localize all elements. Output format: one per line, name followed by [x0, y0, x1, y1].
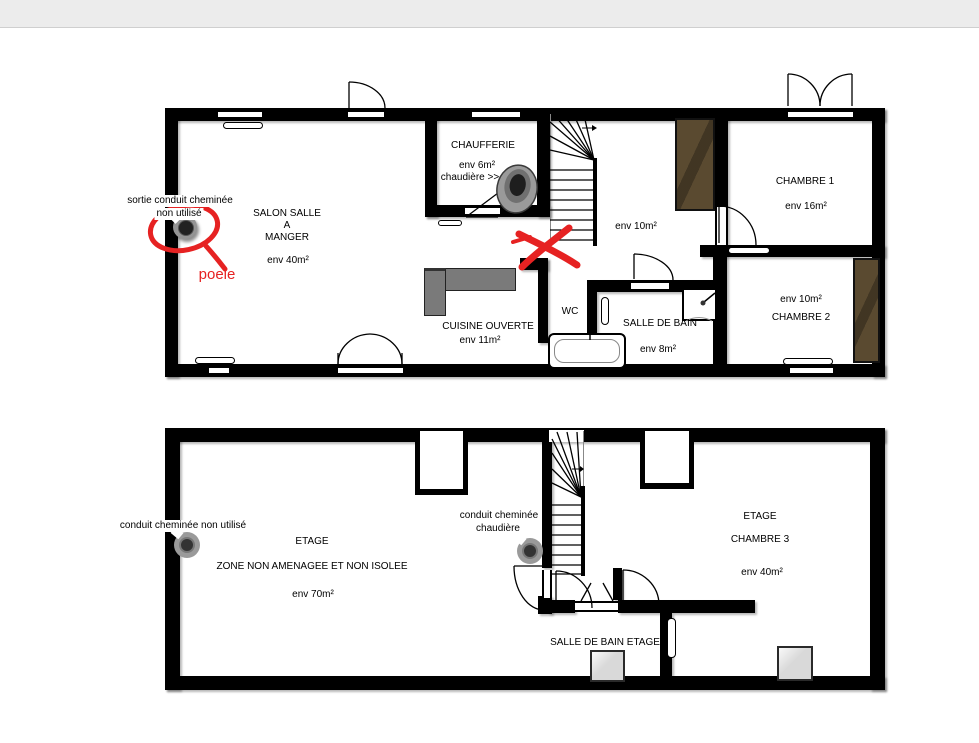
window-slider — [195, 357, 235, 364]
roof-window — [777, 646, 813, 681]
wall-segment — [165, 108, 178, 377]
salon-label-line2: A — [284, 220, 291, 232]
sortie-conduit-annotation-line2: non utilisé — [154, 208, 203, 220]
double-door-leaves — [573, 580, 621, 602]
chambre2-label: CHAMBRE 2 — [772, 312, 830, 324]
floor1-plan: CHAUFFERIE env 6m² chaudière >> SALON SA… — [165, 108, 885, 378]
french-door-threshold — [788, 110, 853, 119]
tap-icon — [584, 331, 596, 343]
door-swing — [501, 562, 547, 614]
salle-de-bain-area-label: env 8m² — [640, 344, 676, 356]
sortie-conduit-annotation-line1: sortie conduit cheminée — [125, 195, 235, 207]
chimney-core — [179, 537, 195, 553]
floor2-plan: ETAGE ZONE NON AMENAGEE ET NON ISOLEE en… — [165, 428, 885, 690]
door-swing — [346, 81, 386, 109]
dormer-window-niche — [640, 431, 694, 489]
chimney-icon — [174, 532, 200, 558]
door-swing — [713, 201, 757, 251]
window — [218, 110, 262, 119]
chaufferie-label: CHAUFFERIE — [451, 140, 515, 152]
conduit-non-utilise-annotation: conduit cheminée non utilisé — [118, 520, 248, 532]
wall-segment — [542, 428, 552, 568]
chaufferie-note-label: chaudière >> — [441, 172, 499, 184]
zone-label: ETAGE — [295, 536, 328, 548]
wardrobe — [675, 118, 715, 211]
door-swing — [620, 568, 660, 608]
zone-label-line2: ZONE NON AMENAGEE ET NON ISOLEE — [217, 561, 408, 573]
hallway-area-label: env 10m² — [615, 221, 657, 233]
door-sill — [438, 220, 462, 226]
conduit-chaudiere-annotation-line2: chaudière — [474, 523, 522, 535]
radiator — [667, 618, 676, 658]
chambre1-area-label: env 16m² — [785, 201, 827, 213]
wall-segment — [870, 428, 885, 690]
dormer-window-niche — [415, 431, 468, 495]
chaufferie-area-label: env 6m² — [459, 160, 495, 172]
chambre1-label: CHAMBRE 1 — [776, 176, 834, 188]
conduit-chaudiere-annotation-line1: conduit cheminée — [458, 510, 540, 522]
wc-label: WC — [562, 306, 579, 318]
wall-segment — [538, 258, 548, 343]
wall-segment — [165, 428, 885, 442]
salle-de-bain-label: SALLE DE BAIN — [623, 318, 697, 330]
salon-label-line1: SALON SALLE — [253, 208, 321, 220]
salon-area-label: env 40m² — [267, 255, 309, 267]
radiator — [601, 297, 609, 325]
salon-label-line3: MANGER — [265, 232, 309, 244]
shower — [682, 288, 717, 321]
cuisine-label: CUISINE OUVERTE — [442, 321, 534, 333]
salle-de-bain-etage-label: SALLE DE BAIN ETAGE — [550, 637, 660, 649]
cuisine-area-label: env 11m² — [460, 335, 501, 347]
wall-segment — [165, 428, 180, 690]
stairs — [552, 431, 584, 576]
french-door-swing — [785, 72, 855, 108]
floor-plan-page: { "colors": { "wall": "#000000", "annota… — [0, 0, 979, 743]
french-door-swing — [335, 333, 405, 366]
door-threshold — [348, 110, 384, 119]
window-slider — [783, 358, 833, 365]
french-door-threshold — [338, 366, 403, 375]
window — [790, 366, 833, 375]
roof-window — [590, 650, 625, 682]
chambre3-label: CHAMBRE 3 — [731, 534, 789, 546]
window-slider — [223, 122, 263, 129]
chambre2-area-label: env 10m² — [780, 294, 822, 306]
bathtub — [548, 333, 626, 369]
wall-segment — [165, 108, 885, 121]
wardrobe — [853, 258, 880, 363]
chimney-icon — [517, 538, 543, 564]
door-threshold — [631, 281, 669, 291]
door-swing — [628, 251, 674, 282]
window — [472, 110, 520, 119]
wall-segment — [165, 364, 885, 377]
window — [209, 366, 229, 375]
poele-annotation: poele — [199, 266, 236, 283]
wall-segment — [587, 280, 597, 335]
stove-core — [178, 220, 194, 236]
chambre3-area-label: env 40m² — [741, 567, 783, 579]
chambre3-etage-label: ETAGE — [743, 511, 776, 523]
chimney-core — [522, 543, 538, 559]
zone-area-label: env 70m² — [292, 589, 334, 601]
stairs — [550, 114, 597, 246]
kitchen-counter — [424, 268, 446, 316]
boiler-icon — [495, 163, 539, 215]
top-toolbar-strip — [0, 0, 979, 28]
wall-segment — [425, 108, 437, 217]
